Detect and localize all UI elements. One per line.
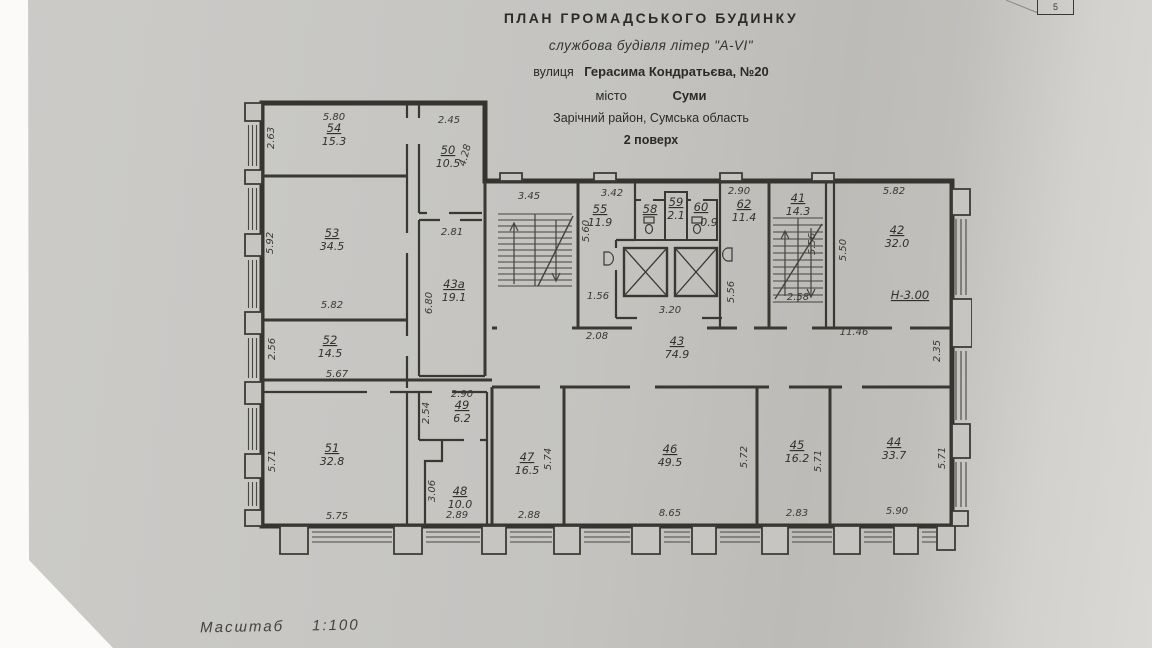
page-number-box: 5 (1037, 0, 1074, 15)
dim-label: 5.92 (265, 232, 276, 254)
dim-label: 5.67 (326, 369, 349, 380)
dim-label: 5.71 (267, 450, 278, 472)
room-49-number: 49 (455, 398, 470, 412)
dim-label: 11.46 (840, 327, 869, 338)
dim-label: 3.06 (427, 480, 438, 502)
street-line: вулиця Герасима Кондратьєва, №20 (452, 64, 850, 79)
street-prefix: вулиця (533, 65, 574, 79)
room-45-number: 45 (790, 438, 805, 452)
dim-label: 2.81 (441, 227, 463, 238)
dim-label: 2.63 (266, 127, 277, 149)
room-42-height-note: Н-3.00 (891, 288, 929, 302)
room-62-area: 11.4 (732, 211, 757, 224)
dim-label: 5.56 (726, 281, 737, 303)
room-54-area: 15.3 (322, 135, 347, 148)
scale-label: Масштаб (200, 618, 284, 636)
dim-label: 5.71 (813, 450, 824, 472)
dim-label: 6.80 (424, 292, 435, 314)
room-42-number: 42 (890, 223, 905, 237)
room-49-area: 6.2 (453, 412, 471, 425)
room-52-number: 52 (323, 333, 338, 347)
page-number: 5 (1053, 2, 1058, 12)
room-42-area: 32.0 (885, 237, 910, 250)
dim-label: 2.08 (586, 331, 608, 342)
room-52-area: 14.5 (318, 347, 343, 360)
room-60-area: 0.9 (700, 216, 718, 229)
dim-label: 1.56 (587, 291, 609, 302)
room-46-number: 46 (663, 442, 678, 456)
elevator-shafts (624, 248, 717, 296)
dim-label: 3.42 (601, 188, 623, 199)
room-59-number: 59 (669, 195, 684, 209)
dim-label: 2.35 (932, 340, 943, 362)
dim-label: 5.60 (581, 220, 592, 242)
dim-label: 5.82 (321, 300, 343, 311)
room-44-number: 44 (887, 435, 902, 449)
room-43a-number: 43a (443, 277, 465, 291)
plan-title: ПЛАН ГРОМАДСЬКОГО БУДИНКУ (452, 10, 850, 26)
room-47-area: 16.5 (515, 464, 540, 477)
room-59-area: 2.1 (667, 209, 685, 222)
dim-label: 2.58 (787, 292, 809, 303)
room-50-number: 50 (441, 143, 456, 157)
door-fixture-icon (723, 248, 732, 261)
room-41-number: 41 (791, 191, 806, 205)
scale-line: Масштаб1:100 (200, 617, 360, 637)
room-50-area: 10.5 (436, 157, 461, 170)
plan-subtitle: службова будівля літер "А-VI" (452, 38, 850, 53)
room-62-number: 62 (737, 197, 752, 211)
toilet-icon (644, 217, 654, 234)
dim-label: 2.45 (438, 115, 460, 126)
floor-plan: 54 15.3 50 10.5 53 34.5 43a 19.1 52 14.5… (242, 96, 972, 560)
dim-label: 2.89 (446, 510, 468, 521)
dim-label: 5.90 (886, 506, 908, 517)
street-value: Герасима Кондратьєва, №20 (584, 64, 769, 79)
room-43-number: 43 (670, 334, 685, 348)
dim-label: 2.83 (786, 508, 808, 519)
scale-value: 1:100 (312, 617, 360, 635)
dim-label: 8.65 (659, 508, 681, 519)
staircase-left (498, 214, 573, 286)
room-51-number: 51 (325, 441, 340, 455)
room-45-area: 16.2 (785, 452, 810, 465)
dim-label: 2.54 (421, 402, 432, 424)
dim-label: 5.50 (838, 239, 849, 261)
room-48-number: 48 (453, 484, 468, 498)
room-43a-area: 19.1 (442, 291, 467, 304)
dim-label: 5.80 (323, 112, 345, 123)
room-53-number: 53 (325, 226, 340, 240)
room-41-area: 14.3 (786, 205, 811, 218)
dim-label: 2.88 (518, 510, 540, 521)
room-47-number: 47 (520, 450, 535, 464)
room-43-area: 74.9 (665, 348, 690, 361)
dim-label: 3.45 (518, 191, 540, 202)
dim-label: 5.82 (883, 186, 905, 197)
dim-label: 5.75 (326, 511, 348, 522)
outer-walls (262, 103, 952, 526)
room-44-area: 33.7 (882, 449, 907, 462)
interior-walls (262, 103, 952, 526)
dim-label: 2.90 (451, 389, 473, 400)
dim-label: 2.90 (728, 186, 750, 197)
dim-label: 5.56 (807, 233, 818, 255)
room-46-area: 49.5 (658, 456, 683, 469)
staircase-right (773, 218, 823, 302)
room-51-area: 32.8 (320, 455, 345, 468)
dim-label: 4.28 (457, 143, 473, 167)
door-fixture-icon (604, 252, 613, 265)
room-60-number: 60 (694, 200, 709, 214)
dim-label: 3.20 (659, 305, 681, 316)
dim-label: 2.56 (267, 338, 278, 360)
room-55-number: 55 (593, 202, 608, 216)
dim-label: 5.74 (543, 448, 554, 470)
room-58-number: 58 (643, 202, 658, 216)
dim-label: 5.71 (937, 447, 948, 469)
dim-label: 5.72 (739, 446, 750, 468)
room-53-area: 34.5 (320, 240, 345, 253)
room-54-number: 54 (327, 121, 342, 135)
